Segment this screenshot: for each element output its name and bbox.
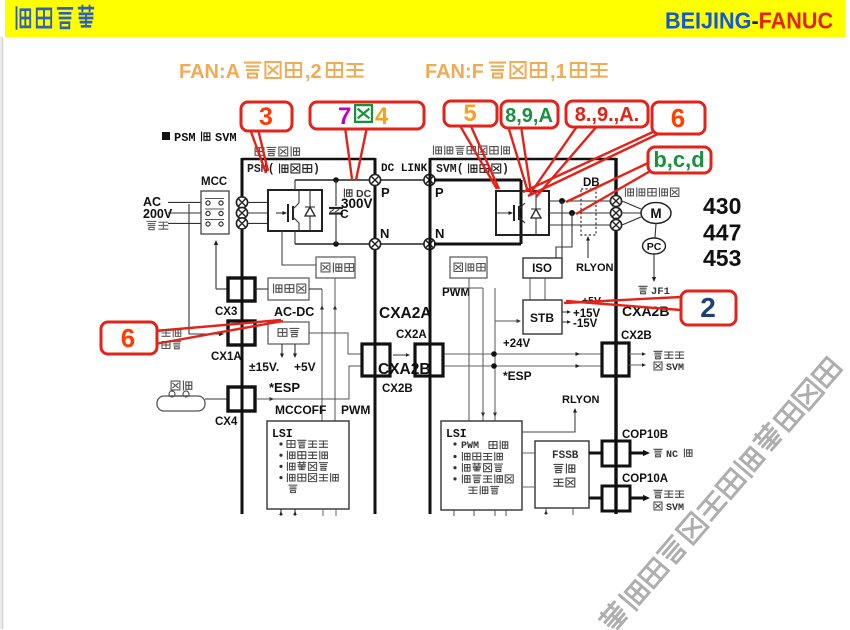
svg-text:SVM: SVM [215, 131, 237, 145]
svg-text:): ) [502, 163, 509, 176]
svg-text:N: N [435, 226, 444, 241]
svg-text:-15V: -15V [573, 318, 598, 330]
svg-text:SVM(: SVM( [436, 163, 464, 176]
svg-text:453: 453 [703, 245, 741, 271]
svg-text:8,9,A: 8,9,A [505, 105, 553, 127]
svg-text:LSI: LSI [272, 428, 293, 441]
svg-text:FSSB: FSSB [552, 450, 579, 462]
svg-text:SVM: SVM [666, 363, 684, 374]
svg-text:P: P [435, 185, 444, 200]
svg-text:RLYON: RLYON [562, 394, 600, 406]
svg-text:CX1A: CX1A [211, 351, 242, 363]
svg-text:CX2B: CX2B [621, 330, 652, 342]
svg-text:8.,9.,A.: 8.,9.,A. [575, 104, 639, 126]
svg-text:ISO: ISO [532, 263, 552, 275]
svg-text:*ESP: *ESP [503, 369, 532, 383]
svg-text:LSI: LSI [446, 428, 467, 441]
svg-text:,1: ,1 [550, 61, 567, 83]
svg-text:COP10B: COP10B [622, 429, 668, 441]
svg-text:*ESP: *ESP [269, 380, 300, 395]
svg-text:±15V.: ±15V. [249, 360, 279, 374]
svg-text:430: 430 [703, 193, 741, 219]
svg-text:COP10A: COP10A [622, 473, 668, 485]
svg-text:MCCOFF: MCCOFF [275, 403, 326, 417]
svg-text:CXA2A: CXA2A [379, 305, 432, 322]
svg-text:CX2A: CX2A [396, 329, 427, 341]
svg-text:5: 5 [463, 100, 476, 127]
svg-text:JF1: JF1 [651, 286, 670, 298]
svg-text:PWM: PWM [442, 287, 470, 299]
svg-text:6: 6 [121, 323, 135, 353]
svg-text:): ) [313, 163, 320, 176]
svg-text:PSM(: PSM( [247, 163, 275, 176]
svg-text:PSM: PSM [174, 131, 196, 145]
svg-text:PWM: PWM [341, 403, 370, 417]
svg-text:M: M [650, 206, 661, 221]
svg-text:STB: STB [530, 311, 554, 325]
svg-text:447: 447 [703, 220, 741, 246]
svg-text:PWM: PWM [461, 441, 479, 452]
svg-text:7: 7 [338, 103, 351, 130]
svg-text:DC LINK: DC LINK [381, 163, 428, 175]
svg-text:BEIJING-FANUC: BEIJING-FANUC [665, 8, 833, 34]
svg-text:SVM: SVM [666, 503, 684, 514]
svg-text:4: 4 [375, 103, 389, 130]
svg-text:N: N [380, 226, 389, 241]
svg-text:,2: ,2 [305, 61, 322, 83]
svg-text:RLYON: RLYON [576, 262, 614, 274]
svg-text:CX4: CX4 [215, 416, 238, 428]
svg-text:2: 2 [700, 292, 716, 323]
svg-text:b,c,d: b,c,d [653, 147, 704, 172]
svg-text:CX2B: CX2B [382, 383, 413, 395]
svg-text:NC: NC [666, 450, 678, 461]
svg-text:3: 3 [259, 103, 273, 131]
svg-text:6: 6 [671, 103, 685, 133]
svg-text:P: P [381, 185, 390, 200]
svg-text:PC: PC [647, 241, 662, 253]
svg-text:+5V: +5V [294, 360, 316, 374]
svg-text:+24V: +24V [503, 338, 531, 350]
svg-text:C: C [340, 207, 349, 221]
svg-text:FAN:A: FAN:A [179, 61, 240, 83]
svg-text:AC-DC: AC-DC [274, 305, 314, 319]
svg-text:CX3: CX3 [215, 306, 237, 318]
svg-text:CXA2B: CXA2B [378, 361, 431, 378]
svg-text:FAN:F: FAN:F [425, 61, 484, 83]
svg-text:MCC: MCC [201, 176, 227, 188]
svg-text:200V: 200V [143, 207, 173, 221]
